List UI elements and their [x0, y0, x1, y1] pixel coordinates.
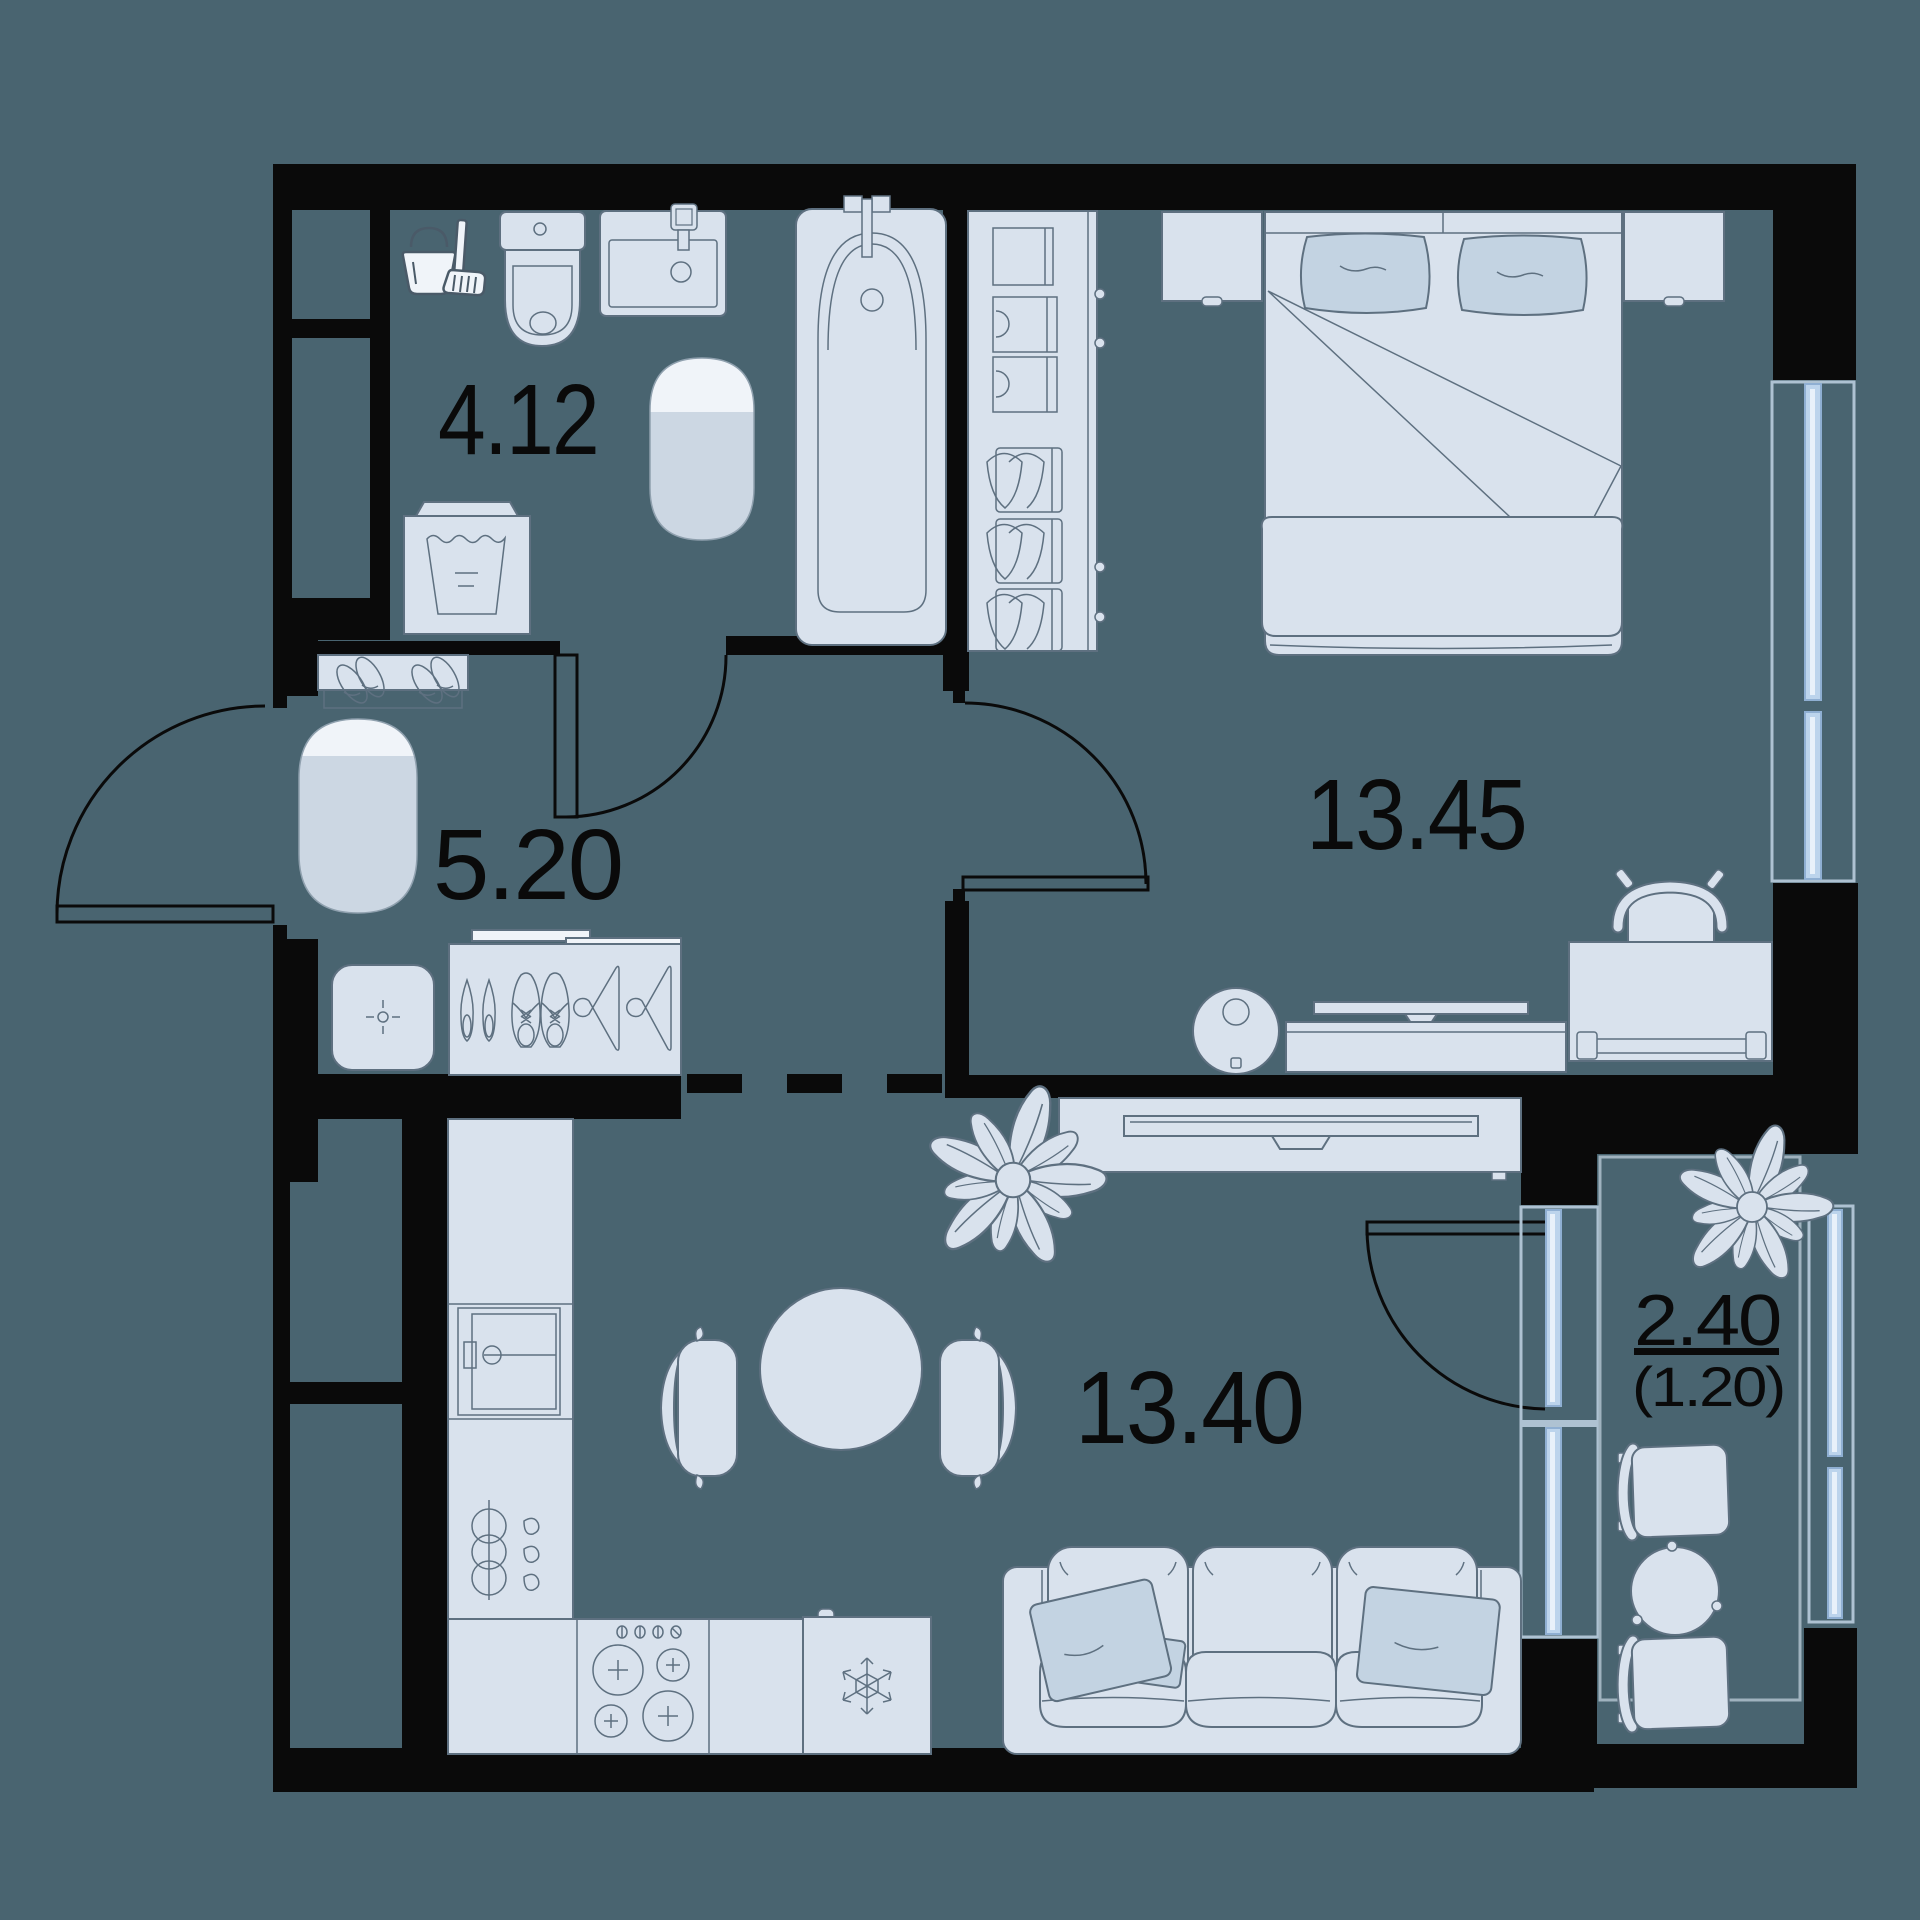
svg-text:(1.20): (1.20)	[1632, 1355, 1784, 1418]
svg-text:13.40: 13.40	[1075, 1350, 1303, 1465]
svg-text:5.20: 5.20	[433, 809, 622, 921]
svg-text:13.45: 13.45	[1306, 759, 1526, 871]
svg-text:4.12: 4.12	[438, 364, 598, 476]
